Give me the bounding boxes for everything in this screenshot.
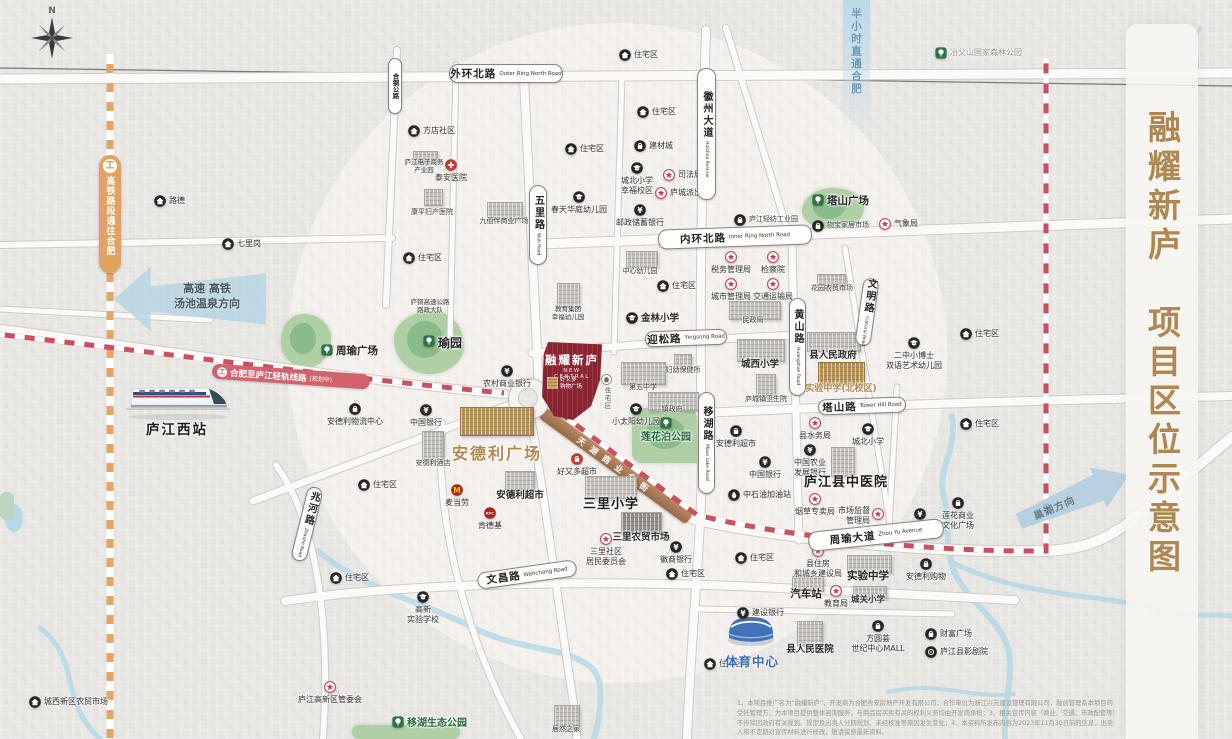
residential-icon	[601, 374, 612, 385]
poi-label: 移湖生态公园	[407, 717, 467, 730]
building-24	[554, 705, 580, 730]
bank-icon: ¥	[914, 508, 926, 520]
house-icon	[960, 418, 972, 430]
road-name-cn: 合铜公路	[390, 73, 400, 99]
house-icon	[29, 696, 41, 708]
house-icon	[330, 572, 342, 584]
shop-icon	[920, 558, 932, 570]
compass-north-label: N	[28, 6, 76, 16]
poi-label: 庐江西站	[107, 422, 247, 440]
house-icon	[960, 328, 972, 340]
chaohu-direction-label: 巢湖方向	[1031, 492, 1077, 523]
chaohu-direction-arrow: 巢湖方向	[1010, 454, 1138, 541]
poi-label: 住宅区	[975, 329, 999, 339]
poi-label: 安德利购物	[881, 572, 971, 582]
mall-building-icon	[547, 377, 558, 389]
tree-icon	[935, 47, 947, 59]
project-area: 融耀新庐 NEW CENTRAL 好又多 购物广场 住宅区	[540, 340, 620, 424]
shop-icon	[872, 620, 884, 632]
house-icon	[222, 238, 234, 250]
sports-center-label: 体育中心	[722, 651, 782, 670]
hefei-corridor-label: 半小时直通合肥	[849, 8, 864, 96]
highway-direction-line1: 高速 高铁	[183, 282, 231, 295]
light-rail-label: 合肥至庐江轻轨线路	[230, 366, 307, 383]
poi-label: 居然之家	[496, 725, 636, 734]
page-title: 融耀新庐 项目区位示意图	[1146, 110, 1179, 578]
light-rail-icon: 工	[217, 366, 228, 377]
highway-direction-line2: 汤池温泉方向	[174, 297, 240, 310]
poi-label: 住宅区	[975, 419, 999, 429]
tree-icon	[392, 716, 404, 728]
hefei-corridor-ribbon: 半小时直通合肥	[843, 0, 870, 140]
poi-label: 冶父山国家森林公园	[950, 48, 1022, 58]
train-illustration	[126, 380, 230, 422]
poi-label: 方圆荟 世纪中心MALL	[833, 634, 923, 655]
road-name-en: Zhaohe Road	[296, 527, 308, 557]
poi-label: 庐江高新区管委会	[285, 695, 375, 705]
building-17	[853, 586, 887, 599]
compass-icon	[30, 16, 74, 60]
road-label: 兆河路Zhaohe Road	[290, 485, 324, 563]
title-panel: 融耀新庐 项目区位示意图	[1126, 24, 1198, 739]
shop-icon	[925, 628, 937, 640]
sports-center-icon	[726, 612, 776, 648]
poi-label: 住宅区	[345, 573, 369, 583]
svg-text:¥: ¥	[917, 510, 923, 519]
park-4	[352, 725, 460, 739]
poi-label: 庐江县影剧院	[940, 647, 988, 657]
poi-label: 财富广场	[940, 629, 972, 639]
project-name: 融耀新庐	[544, 352, 600, 368]
poi-label: 路德	[169, 196, 185, 206]
light-rail-status: (规划中)	[309, 373, 332, 384]
hsr-line-label: 高铁路段通往合肥	[104, 176, 117, 256]
railway-icon: 工	[103, 159, 117, 173]
highway-direction-label: 高速 高铁 汤池温泉方向	[146, 282, 268, 312]
hsr-line-badge: 工 高铁路段通往合肥	[99, 155, 121, 273]
project-mall-label: 好又多 购物广场	[560, 377, 582, 391]
shop-icon	[952, 497, 964, 509]
project-residential-label: 住宅区	[602, 387, 612, 410]
house-icon	[154, 195, 166, 207]
film-icon	[925, 646, 937, 658]
poi-label: 城西新区农贸市场	[44, 697, 108, 707]
map-canvas: 天湖商业金街 路德七里岗方店社区庐江电子商务 产业园泰安医院康平妇产医院九佰伴商…	[0, 0, 1232, 739]
disclaimer-text: 1、本项目推广名为“融耀新庐”，开发商为合肥秀安房地产开发有限公司；合作单位为浙…	[737, 699, 1117, 738]
poi-label: 七里岗	[237, 239, 261, 249]
compass-rose: N	[28, 6, 76, 66]
star-icon	[324, 681, 336, 693]
poi-label: 莲花商业 文化广场	[913, 511, 1003, 532]
